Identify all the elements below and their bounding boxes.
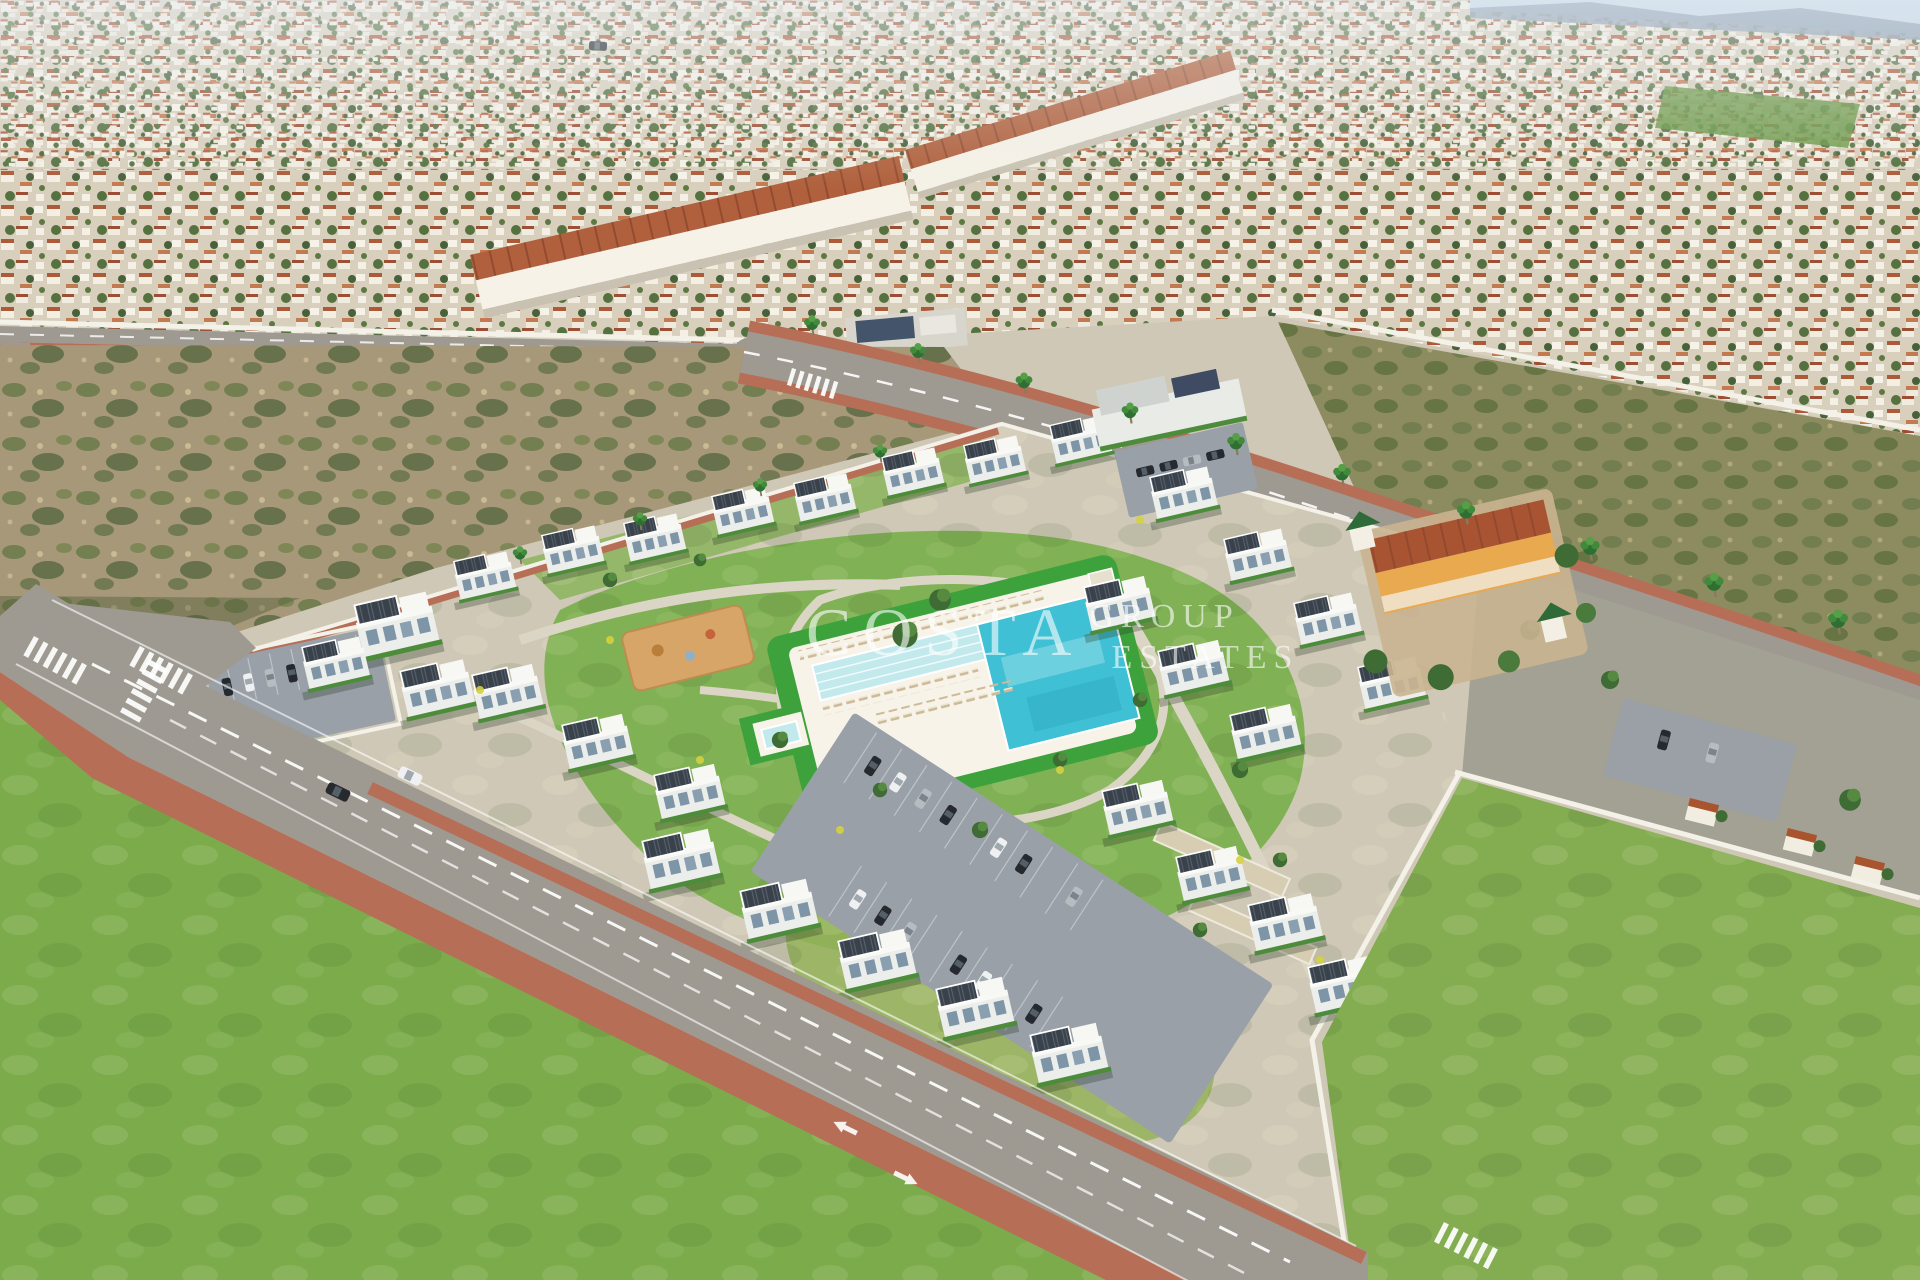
aerial-development-photo: COSTA GROUP ESTATES bbox=[0, 0, 1920, 1280]
atmospheric-haze bbox=[0, 0, 1920, 190]
aerial-scene bbox=[0, 0, 1920, 1280]
